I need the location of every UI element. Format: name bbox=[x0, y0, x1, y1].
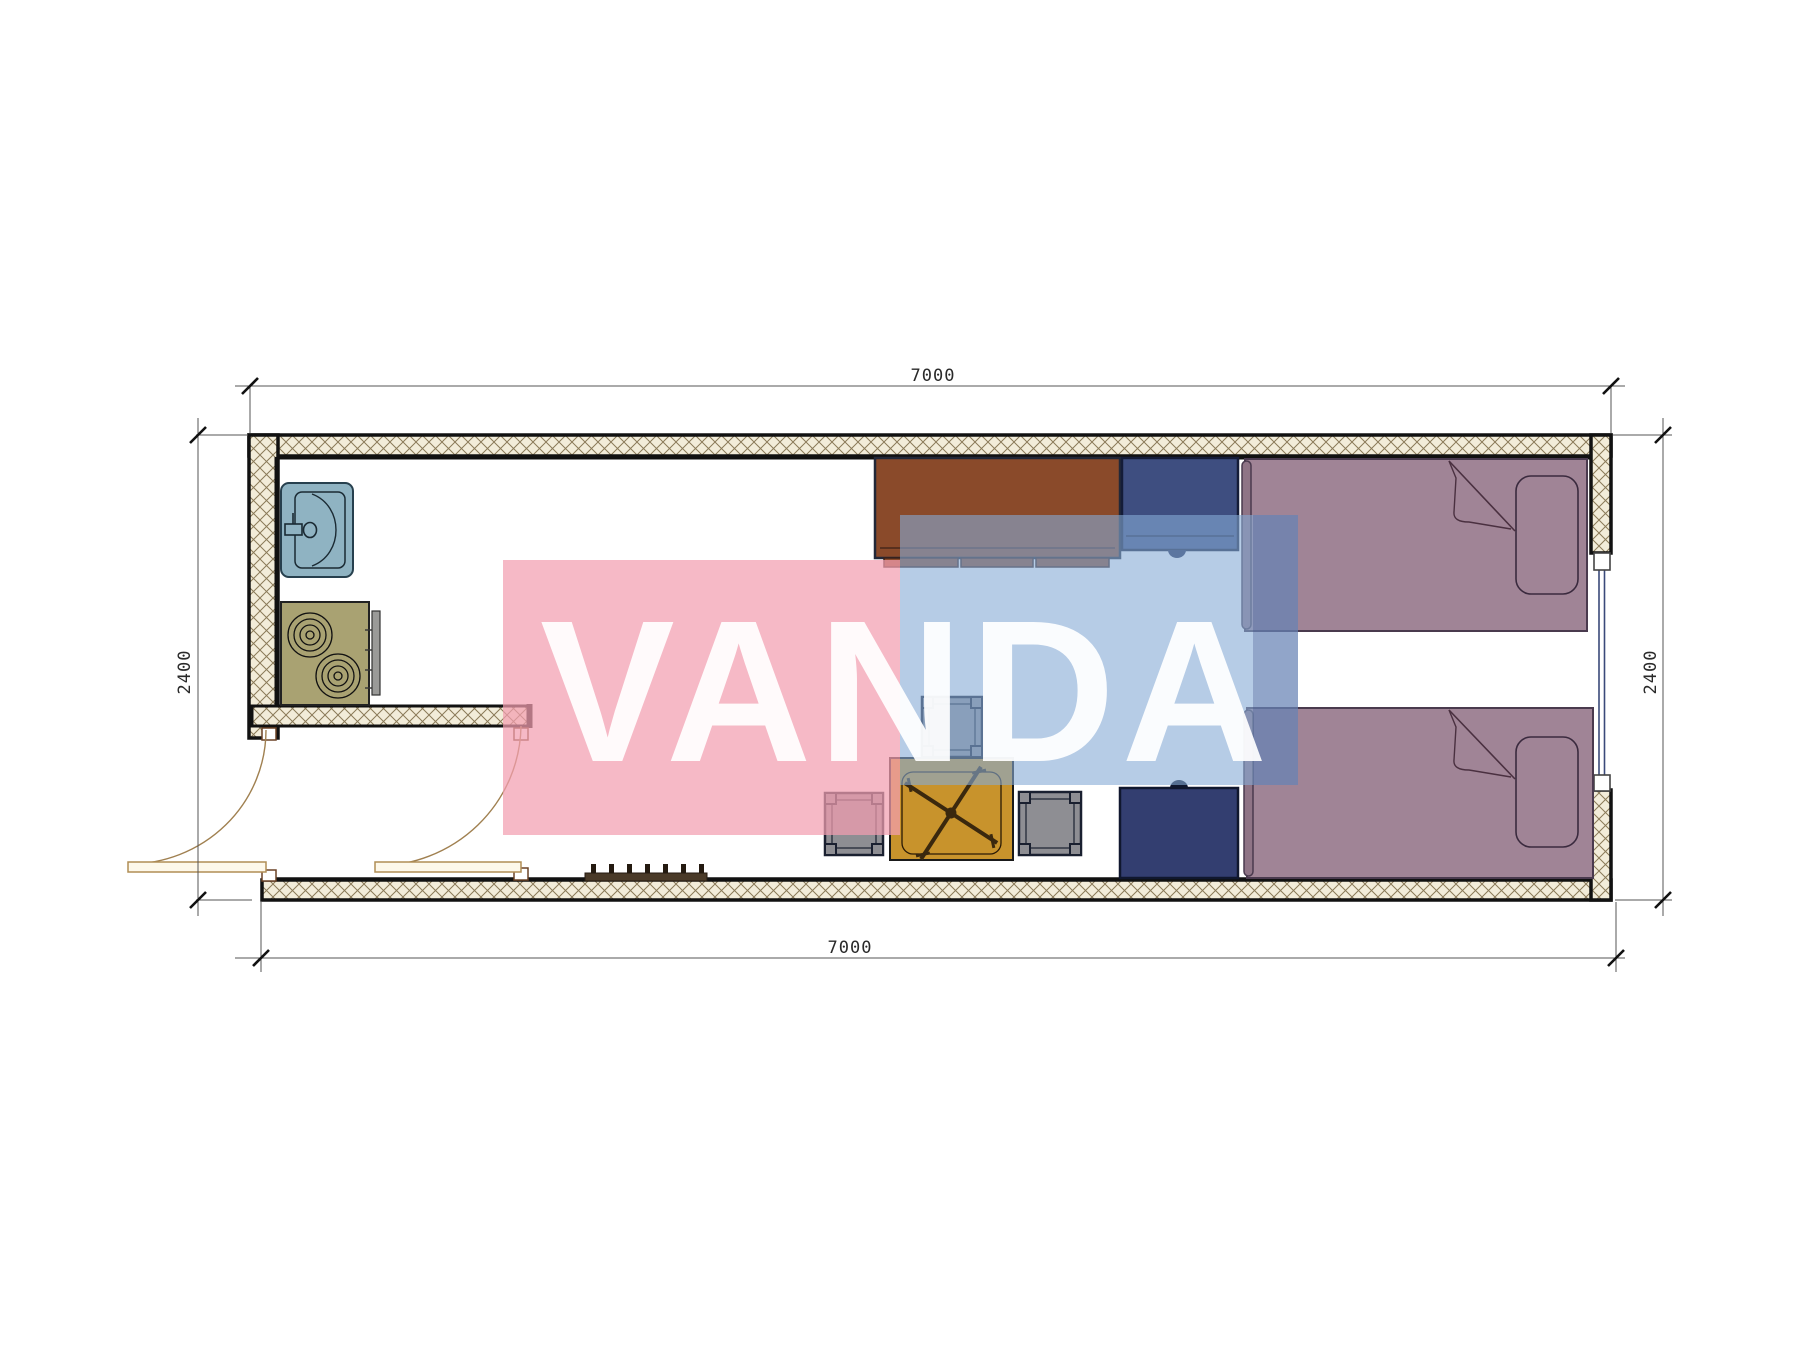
door-left-leaf bbox=[128, 862, 266, 872]
coat-rack-icon bbox=[585, 864, 707, 881]
door-left-icon bbox=[128, 728, 276, 881]
wall-top bbox=[249, 435, 1611, 456]
dim-top-label: 7000 bbox=[911, 366, 956, 386]
door-inner-leaf bbox=[375, 862, 521, 872]
wall-bottom bbox=[262, 880, 1611, 900]
dim-left-label: 2400 bbox=[175, 650, 195, 695]
door-inner-icon bbox=[375, 726, 528, 880]
bed-bottom-icon bbox=[1244, 708, 1593, 878]
bed-top-icon bbox=[1242, 459, 1587, 631]
cabinet-bottom-icon bbox=[1120, 780, 1238, 878]
dim-right-label: 2400 bbox=[1641, 650, 1661, 695]
stove-icon bbox=[281, 602, 380, 705]
stool-1-icon bbox=[922, 697, 982, 757]
floor-plan-drawing: 7000 7000 2400 2400 bbox=[0, 0, 1800, 1350]
office-table-icon bbox=[875, 737, 1027, 889]
wall-left bbox=[249, 435, 278, 738]
chair-top-icon bbox=[1122, 458, 1238, 558]
dim-bottom-label: 7000 bbox=[828, 938, 873, 958]
floor-plan-page: 7000 7000 2400 2400 VANDA bbox=[0, 0, 1800, 1350]
stool-2-icon bbox=[825, 793, 883, 855]
window-right-icon bbox=[1594, 553, 1610, 791]
sink-icon bbox=[281, 483, 353, 577]
wall-right-upper bbox=[1591, 435, 1611, 553]
stool-3-icon bbox=[1019, 792, 1081, 855]
desk-icon bbox=[875, 458, 1120, 567]
wall-partition bbox=[252, 706, 531, 726]
